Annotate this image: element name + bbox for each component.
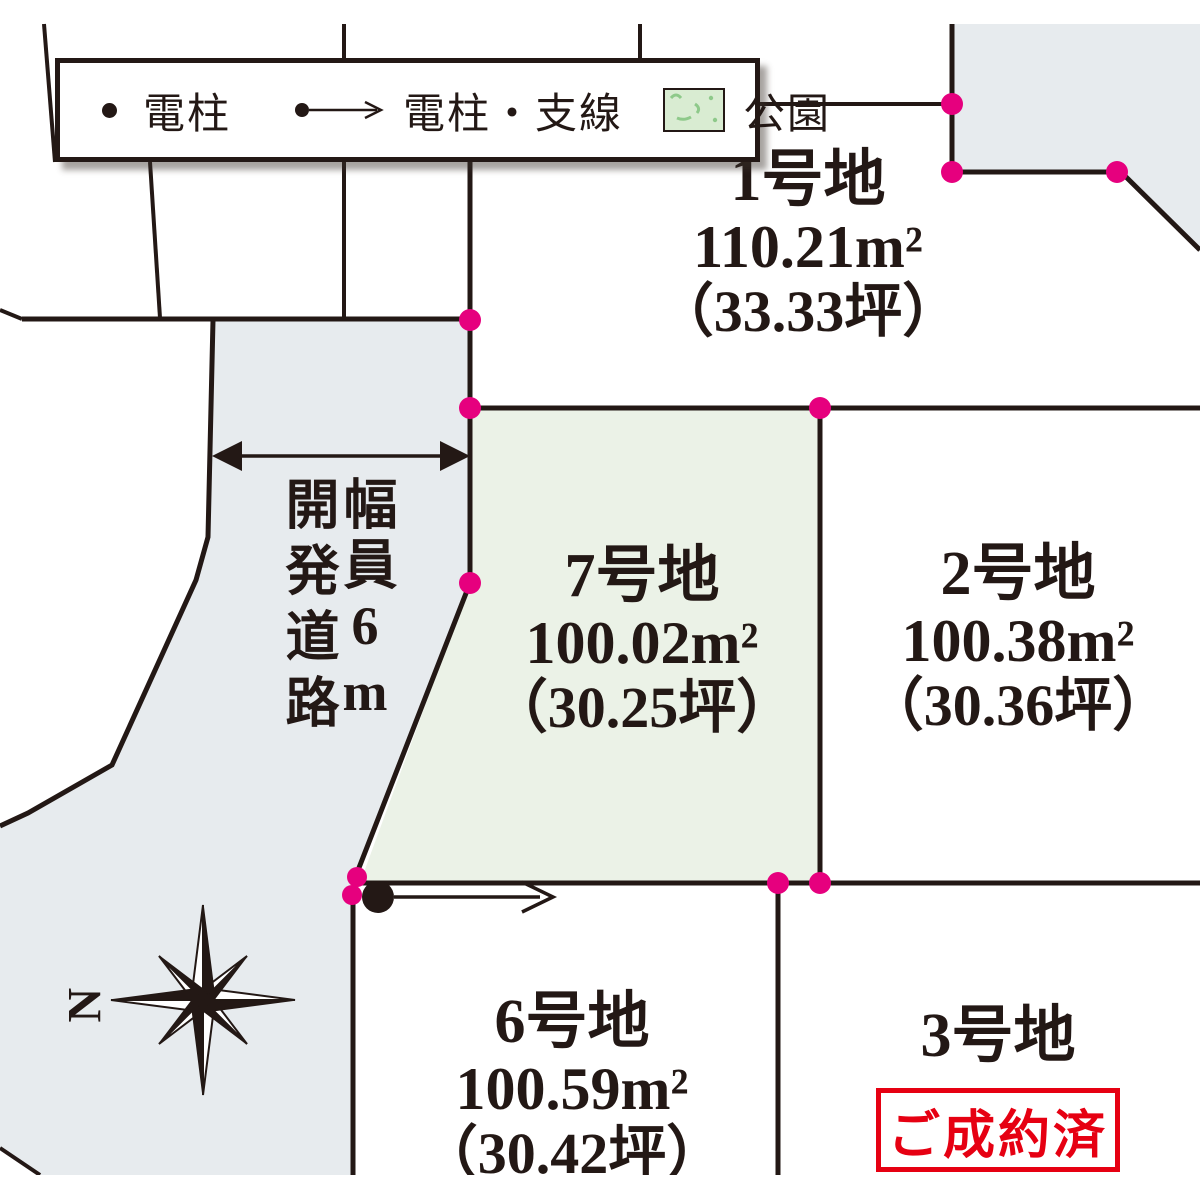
lot-1-area: 110.21m² [656,214,961,280]
utility-pole-wire-symbol [362,881,553,913]
lot-2-name: 2号地 [866,540,1171,608]
park-texture [665,90,723,130]
road-width-label: 幅員6m [326,476,405,728]
lot-7-area-text: 100.02m² [490,610,795,676]
utility-pole-wire-icon [293,97,389,123]
legend-label-pole: 電柱 [143,80,231,141]
lot-7-label: 7号地 100.02m² （30.25坪） [490,542,795,740]
lot-1-tsubo: （33.33坪） [656,280,961,344]
lot-3-name: 3号地 [920,1002,1075,1070]
legend-item-pole: 電柱 [102,80,231,141]
park-swatch-icon [663,88,725,132]
lot-site-plan: 電柱 電柱・支線 公園 開発道路 幅員6m [0,0,1200,1200]
lot-7-tsubo: （30.25坪） [490,676,795,740]
legend-item-pole-wire: 電柱・支線 [293,80,623,141]
lot-2-label: 2号地 100.38m² （30.36坪） [866,540,1171,738]
legend-label-pole-wire: 電柱・支線 [403,80,623,141]
legend-label-park: 公園 [743,80,831,141]
bottom-margin [0,1175,1200,1200]
map-legend: 電柱 電柱・支線 公園 [55,58,760,162]
compass-north-label: N [58,977,113,1023]
lot-6-area: 100.59m² [420,1056,725,1122]
sold-badge-text: ご成約済 [888,1093,1108,1168]
utility-pole-icon [102,103,117,118]
legend-item-park: 公園 [663,80,831,141]
lot-7-name: 7号地 [490,542,795,610]
lot-6-label: 6号地 100.59m² （30.42坪） [420,988,725,1186]
lot-3-label: 3号地 [920,1002,1075,1070]
lot-6-name: 6号地 [420,988,725,1056]
lot-2-tsubo: （30.36坪） [866,674,1171,738]
sold-badge: ご成約済 [876,1088,1120,1172]
lot-2-area: 100.38m² [866,608,1171,674]
top-right-road-area [954,24,1200,252]
lot-1-label: 1号地 110.21m² （33.33坪） [656,146,961,344]
